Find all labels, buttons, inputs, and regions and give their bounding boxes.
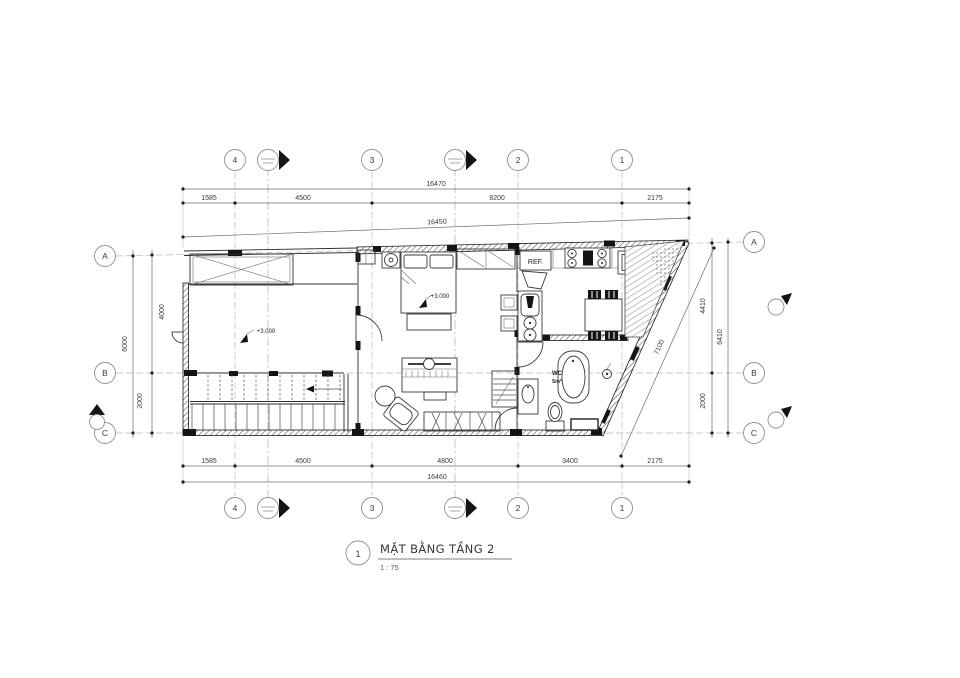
bathtub xyxy=(558,351,589,403)
dimensions-left: 6000 4000 2000 xyxy=(122,250,166,438)
dim-top-seg-3: 8200 xyxy=(489,195,505,202)
wc-door xyxy=(518,342,543,367)
balcony xyxy=(625,241,684,337)
kitchen: REF. W xyxy=(501,247,644,341)
bathroom: WC 5m² xyxy=(495,342,612,431)
stair-direction-arrow xyxy=(306,386,314,393)
title-block: 1 MẶT BẰNG TẦNG 2 1 : 75 xyxy=(346,540,512,572)
grid-bubbles-right: A B C xyxy=(744,232,793,444)
grid-col-1-top: 1 xyxy=(620,155,625,165)
grid-row-b-right: B xyxy=(751,368,757,378)
dining-table xyxy=(585,299,622,331)
dim-top-seg-4: 2175 xyxy=(647,195,663,202)
section-marker xyxy=(768,406,792,428)
drawing-title: MẶT BẰNG TẦNG 2 xyxy=(380,540,495,556)
section-marker xyxy=(258,150,291,171)
grid-row-c-left: C xyxy=(102,428,108,438)
dim-left-seg-1: 4000 xyxy=(159,304,166,320)
grid-row-a-left: A xyxy=(102,251,108,261)
grid-row-b-left: B xyxy=(102,368,108,378)
detail-number: 1 xyxy=(355,549,360,560)
grid-col-3-top: 3 xyxy=(370,155,375,165)
grid-bubbles-bottom: 4 3 2 1 xyxy=(225,498,633,519)
living-level-marker: +3.000 xyxy=(257,329,276,335)
dim-right-total: 6410 xyxy=(717,329,724,345)
grid-bubbles-top: 4 3 2 1 xyxy=(225,150,633,171)
armchair xyxy=(383,396,420,432)
dim-right-diagonal: 7100 xyxy=(653,339,666,356)
dim-bot-seg-2: 4500 xyxy=(295,458,311,465)
skylight-void xyxy=(190,254,293,285)
dim-top-seg-2: 4500 xyxy=(295,195,311,202)
dim-bot-total: 16460 xyxy=(427,474,447,481)
living-room: +3.000 xyxy=(172,315,382,343)
floor-plan-sheet: +3.000 +3.000 REF. xyxy=(0,0,960,678)
bedroom-level-marker: +3.000 xyxy=(431,294,450,300)
dim-top-wall: 16450 xyxy=(427,219,447,227)
stool xyxy=(501,295,517,310)
section-marker xyxy=(445,150,478,171)
dimensions-top: 16470 1585 4500 8200 2175 16450 xyxy=(181,181,690,248)
dining-area xyxy=(585,290,622,340)
grid-col-3-bottom: 3 xyxy=(370,503,375,513)
grid-col-4-bottom: 4 xyxy=(233,503,238,513)
fridge-door-swing xyxy=(522,271,547,289)
dim-left-seg-2: 2000 xyxy=(137,393,144,409)
upper-stair xyxy=(492,371,517,407)
bed xyxy=(401,252,456,313)
dim-bot-seg-4: 3400 xyxy=(562,458,578,465)
stool xyxy=(501,316,517,331)
bedroom-door xyxy=(356,315,382,341)
grid-bubbles-left: A B C xyxy=(89,246,116,444)
section-marker xyxy=(258,498,291,519)
dim-left-total: 6000 xyxy=(122,336,129,352)
drawing-scale: 1 : 75 xyxy=(380,563,399,572)
desk-stool xyxy=(424,392,446,400)
vanity xyxy=(518,379,538,414)
grid-col-2-bottom: 2 xyxy=(516,503,521,513)
west-wall xyxy=(183,283,189,433)
grid-row-a-right: A xyxy=(751,237,757,247)
dim-right-seg-1: 4410 xyxy=(700,298,707,314)
grid-row-c-right: C xyxy=(751,428,757,438)
dim-bot-seg-3: 4800 xyxy=(437,458,453,465)
wc-shelf xyxy=(571,419,598,430)
toilet xyxy=(546,421,564,431)
south-wall xyxy=(183,430,602,436)
grid-col-4-top: 4 xyxy=(233,155,238,165)
dim-top-seg-1: 1585 xyxy=(201,195,217,202)
section-marker xyxy=(768,293,792,315)
section-marker xyxy=(445,498,478,519)
dim-top-total: 16470 xyxy=(426,181,446,188)
dim-bot-seg-5: 2175 xyxy=(647,458,663,465)
main-staircase xyxy=(190,375,345,431)
dim-bot-seg-1: 1585 xyxy=(201,458,217,465)
refrigerator-label: REF. xyxy=(528,259,543,266)
grid-col-1-bottom: 1 xyxy=(620,503,625,513)
bed-bench xyxy=(407,314,451,330)
wc-label: WC xyxy=(552,371,563,377)
section-marker xyxy=(89,404,105,430)
grid-col-2-top: 2 xyxy=(516,155,521,165)
slatted-shelf xyxy=(424,412,500,431)
wc-area-label: 5m² xyxy=(552,378,562,385)
dim-right-seg-2: 2000 xyxy=(700,393,707,409)
floor-plan-drawing: +3.000 +3.000 REF. xyxy=(0,0,960,678)
wc-door-2 xyxy=(495,408,517,430)
